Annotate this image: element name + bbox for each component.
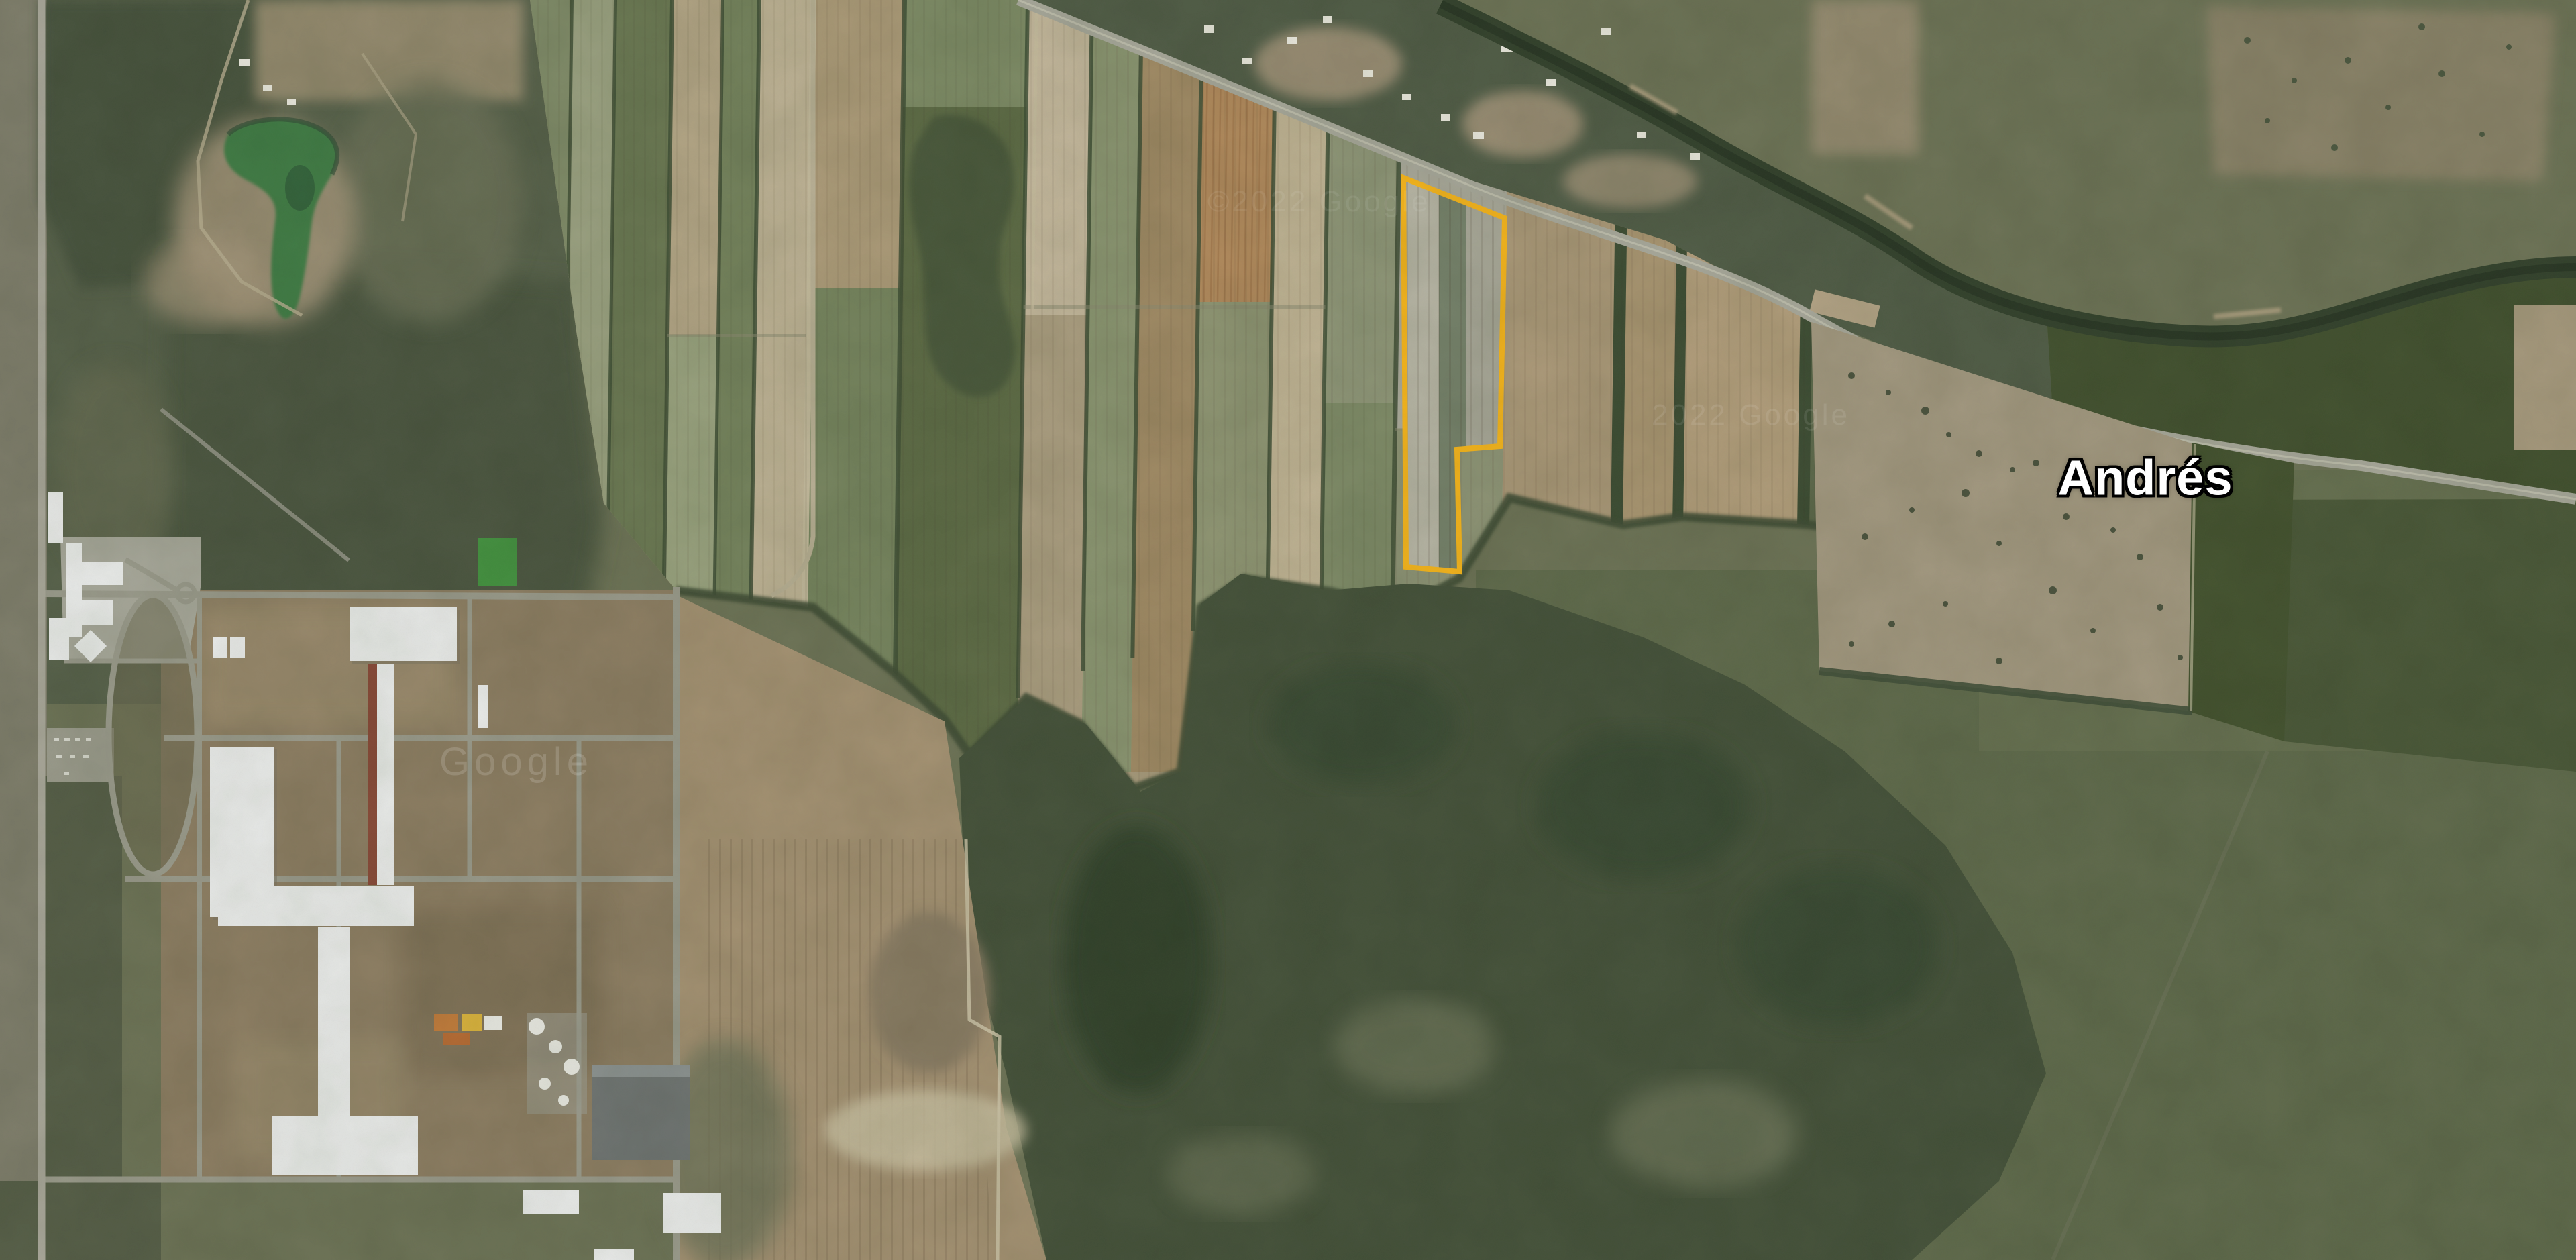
satellite-map-canvas[interactable]: ©2022 Google 2022 Google Google Andrés [0,0,2576,1260]
texture-overlays [0,0,2576,1260]
place-label-andres: Andrés [2058,450,2233,507]
